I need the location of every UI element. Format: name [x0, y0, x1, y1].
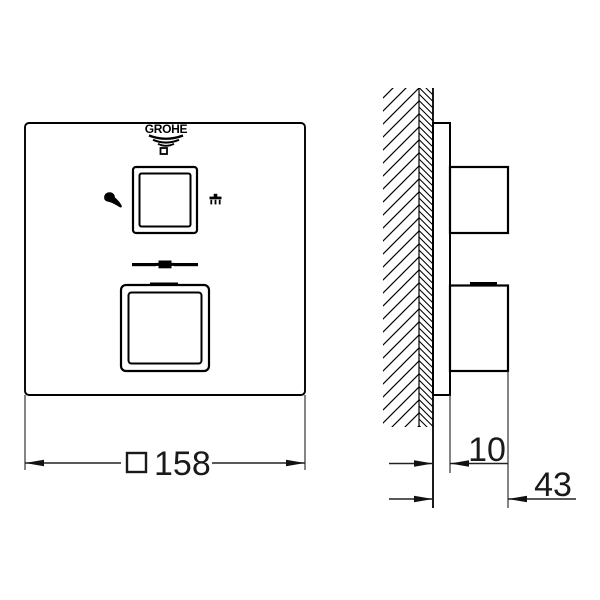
upper-handle	[133, 167, 197, 233]
projection-value: 10	[468, 431, 506, 469]
front-view: GROHE	[25, 122, 305, 483]
lower-handle-inner	[129, 293, 202, 364]
wall-hatch	[383, 88, 433, 427]
side-view: 10 43	[383, 88, 576, 508]
arrow-left-icon	[508, 496, 527, 502]
drawing-canvas: GROHE	[0, 0, 600, 600]
upper-handle-side-profile	[450, 167, 508, 233]
front-width-value: 158	[154, 445, 211, 483]
arrow-left-icon	[450, 460, 469, 466]
lower-handle	[121, 283, 209, 372]
wall-hatch-coarse	[383, 88, 419, 427]
arrow-right-icon	[286, 460, 305, 467]
depth-value: 43	[534, 466, 572, 504]
arrow-right-icon	[414, 460, 433, 466]
technical-drawing-page: GROHE	[0, 0, 600, 600]
square-symbol-icon	[127, 453, 146, 472]
arrow-left-icon	[25, 460, 44, 467]
lower-handle-side-profile	[450, 282, 508, 371]
grohe-logo-text: GROHE	[145, 122, 188, 136]
dimension-158: 158	[25, 395, 305, 483]
faceplate-side-profile	[433, 123, 450, 395]
wall-hatch-fine	[419, 88, 433, 427]
upper-handle-inner	[140, 174, 191, 227]
arrow-right-icon	[414, 496, 433, 502]
